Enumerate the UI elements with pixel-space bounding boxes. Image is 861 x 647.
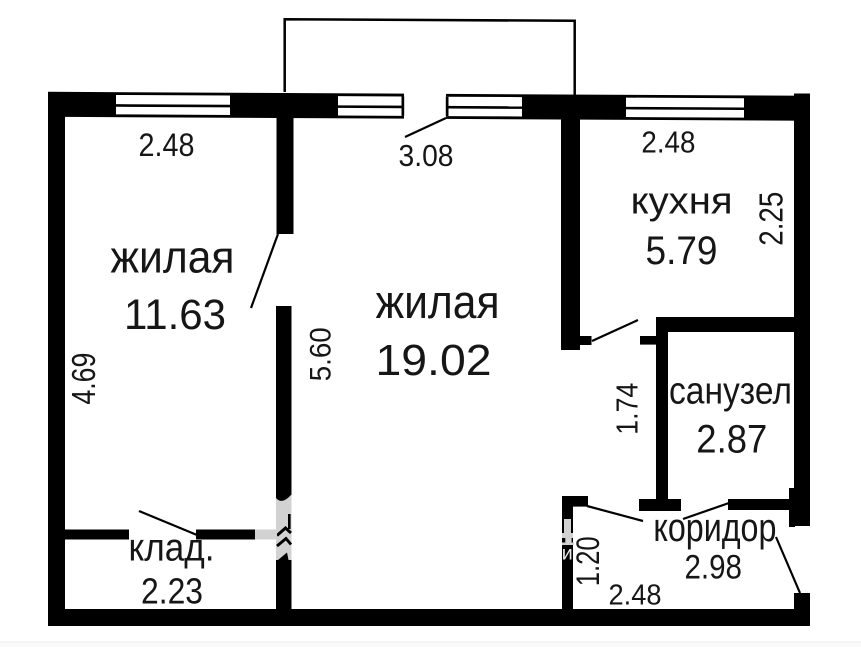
svg-text:11.63: 11.63	[124, 291, 226, 339]
svg-text:5.60: 5.60	[305, 327, 338, 381]
svg-text:2.25: 2.25	[753, 192, 790, 246]
svg-text:5.79: 5.79	[646, 229, 718, 273]
svg-text:2.48: 2.48	[609, 579, 662, 611]
svg-text:1.74: 1.74	[610, 383, 645, 435]
svg-text:1.20: 1.20	[570, 536, 606, 586]
svg-text:3.08: 3.08	[399, 138, 454, 173]
svg-text:коридор: коридор	[653, 506, 776, 550]
svg-text:2.23: 2.23	[141, 571, 203, 612]
svg-text:2.98: 2.98	[684, 548, 742, 586]
svg-text:санузел: санузел	[669, 370, 792, 412]
svg-text:жилая: жилая	[111, 232, 235, 283]
svg-text:2.87: 2.87	[696, 418, 767, 462]
svg-text:клад.: клад.	[129, 527, 215, 570]
svg-text:2.48: 2.48	[641, 125, 695, 160]
svg-text:жилая: жилая	[376, 275, 500, 328]
svg-text:кухня: кухня	[631, 181, 733, 223]
svg-text:4.69: 4.69	[65, 353, 102, 405]
svg-text:2.48: 2.48	[139, 127, 195, 163]
svg-text:19.02: 19.02	[376, 336, 492, 385]
